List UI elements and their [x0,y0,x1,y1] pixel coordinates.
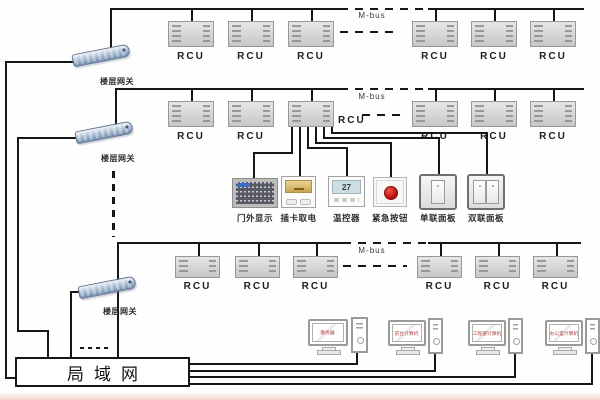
computer-screen: 办公室计算机 [549,324,579,342]
monitor-base [476,350,500,355]
rcu-box [417,256,462,278]
computer-label: 工程部计算机 [473,330,502,337]
lan-box: 局域网 [15,357,190,387]
computer-screen: 前台计算机 [392,324,422,342]
wire [434,353,436,372]
rcu-box [168,21,214,47]
computer-screen: 服务器 [312,323,344,342]
bottom-tint [0,392,600,400]
floor-gateway-device [76,276,140,302]
computer-screen: 工程部计算机 [472,324,502,342]
wire [190,383,593,385]
stub [435,8,437,21]
device-label: 双联面板 [464,212,508,224]
bus-line-floor3 [117,242,343,244]
device-label: 紧急按钮 [368,212,412,224]
wire [486,132,488,174]
rcu-box [228,21,274,47]
computer-tower [585,318,600,354]
rcu-box [471,101,517,127]
computer-label: 前台计算机 [395,330,419,337]
rcu-box [412,101,458,127]
lan-continuation-dashed [80,347,112,349]
rcu-label: RCU [288,51,334,62]
wire [323,127,325,137]
computer-monitor: 服务器 [308,319,348,346]
rcu-box [530,101,576,127]
stub [553,88,555,101]
lan-label: 局域网 [67,360,148,385]
rcu-label: RCU [228,131,274,142]
thermostat-value: 27 [342,183,351,192]
stub [494,8,496,21]
bus-dashed-floor2 [340,88,428,90]
rcu-label: RCU [168,51,214,62]
computer-monitor: 办公室计算机 [545,320,583,346]
wire [70,291,72,357]
bus-line-floor1 [428,8,584,10]
gateway-label: 楼层网关 [94,306,146,317]
computer-tower [351,317,368,353]
wire [253,152,255,178]
wire [315,142,392,144]
rcu-box [288,21,334,47]
bus-line-floor1 [110,8,340,10]
wire [190,376,516,378]
computer-monitor: 前台计算机 [388,320,426,346]
stub [251,88,253,101]
rcu-label: RCU [471,51,517,62]
rcu-label: RCU [228,51,274,62]
thermostat-buttons [334,198,359,202]
rcu-box-with-devices [288,101,334,127]
switch-rocker [431,180,445,204]
device-label: 门外显示 [227,212,283,224]
rcu-label: RCU [175,281,220,292]
wire [299,127,301,177]
rcu-box [235,256,280,278]
device-label: 单联面板 [416,212,460,224]
rcu-label: RCU [417,281,462,292]
wire [346,147,348,176]
thermostat-device: 27 [328,176,365,207]
computer-label: 服务器 [321,329,335,336]
stub [311,88,313,101]
rcu-box [293,256,338,278]
rcu-label: RCU [533,281,578,292]
wire [356,352,358,365]
rcu-label: RCU [530,131,576,142]
bus-line-floor2 [428,88,584,90]
wire [5,61,7,378]
wire [253,152,293,154]
wire [331,132,488,134]
m-bus-label: M-bus [350,92,394,101]
wire [190,370,436,372]
rcu-label: RCU [530,51,576,62]
rcu-box [471,21,517,47]
computer-tower [508,318,523,354]
device-label: 插卡取电 [276,212,321,224]
stub [556,242,558,256]
rcu-label: RCU [235,281,280,292]
wire [190,363,358,365]
switch-rocker [486,180,499,204]
rcu-box [412,21,458,47]
wire [291,127,293,152]
computer-label: 办公室计算机 [550,330,579,337]
rcu-continuation-dashed [343,265,407,267]
rcu-box [168,101,214,127]
stub [191,88,193,101]
rcu-label: RCU [475,281,520,292]
rcu-box [475,256,520,278]
rcu-box [175,256,220,278]
monitor-base [396,350,420,355]
door-display-device [232,178,278,208]
stub [498,242,500,256]
rcu-box [228,101,274,127]
computer-tower [428,318,443,354]
rcu-continuation-dashed [340,31,400,33]
rcu-label: RCU [168,131,214,142]
wire [5,61,74,63]
stub [553,8,555,21]
gateway-body [77,276,136,300]
wire [390,142,392,177]
diagram-canvas: M-bus M-bus M-bus RCU RCU RCU RCU RCU RC… [0,0,600,400]
card-slot [285,180,312,193]
wire [591,353,593,385]
single-switch-panel [419,174,457,210]
double-switch-panel [467,174,505,210]
rcu-box [530,21,576,47]
wire [514,353,516,378]
device-label: 温控器 [324,212,369,224]
wire [323,137,440,139]
monitor-base [317,350,341,355]
floor-gateway-device [70,44,134,70]
floor-gateway-device [73,121,137,147]
door-display-chip [238,183,250,187]
stub [258,242,260,256]
card-power-device [281,176,316,208]
gateway-body [71,44,130,68]
stub [198,242,200,256]
stub [311,8,313,21]
wire [17,137,76,139]
wire [307,127,309,147]
stub [440,242,442,256]
monitor-base [553,350,577,355]
wire [307,147,348,149]
computer-monitor: 工程部计算机 [468,320,506,346]
wire [438,137,440,174]
gateway-label: 楼层网关 [91,76,143,87]
rcu-label: RCU [412,51,458,62]
rcu-box [533,256,578,278]
rcu-label: RCU [293,281,338,292]
floor-continuation-dashed [112,171,115,237]
bus-line-floor3 [428,242,581,244]
bus-line-floor2 [115,88,340,90]
bus-dashed-floor1 [340,8,428,10]
stub [494,88,496,101]
m-bus-label: M-bus [350,11,394,20]
stub [435,88,437,101]
card-button [286,199,297,205]
emergency-red-button [384,186,398,200]
m-bus-label: M-bus [350,246,394,255]
wire [47,330,49,357]
emergency-button-device [373,177,407,207]
gateway-label: 楼层网关 [92,153,144,164]
wire [17,137,19,332]
stub [251,8,253,21]
stub [191,8,193,21]
wire [315,127,317,142]
gateway-body [74,121,133,145]
stub [316,242,318,256]
wire [17,330,49,332]
thermostat-lcd: 27 [332,180,361,194]
rcu-label: RCU [338,115,372,126]
switch-rocker [473,180,486,204]
card-button [300,199,311,205]
bus-dashed-floor3 [343,242,428,244]
